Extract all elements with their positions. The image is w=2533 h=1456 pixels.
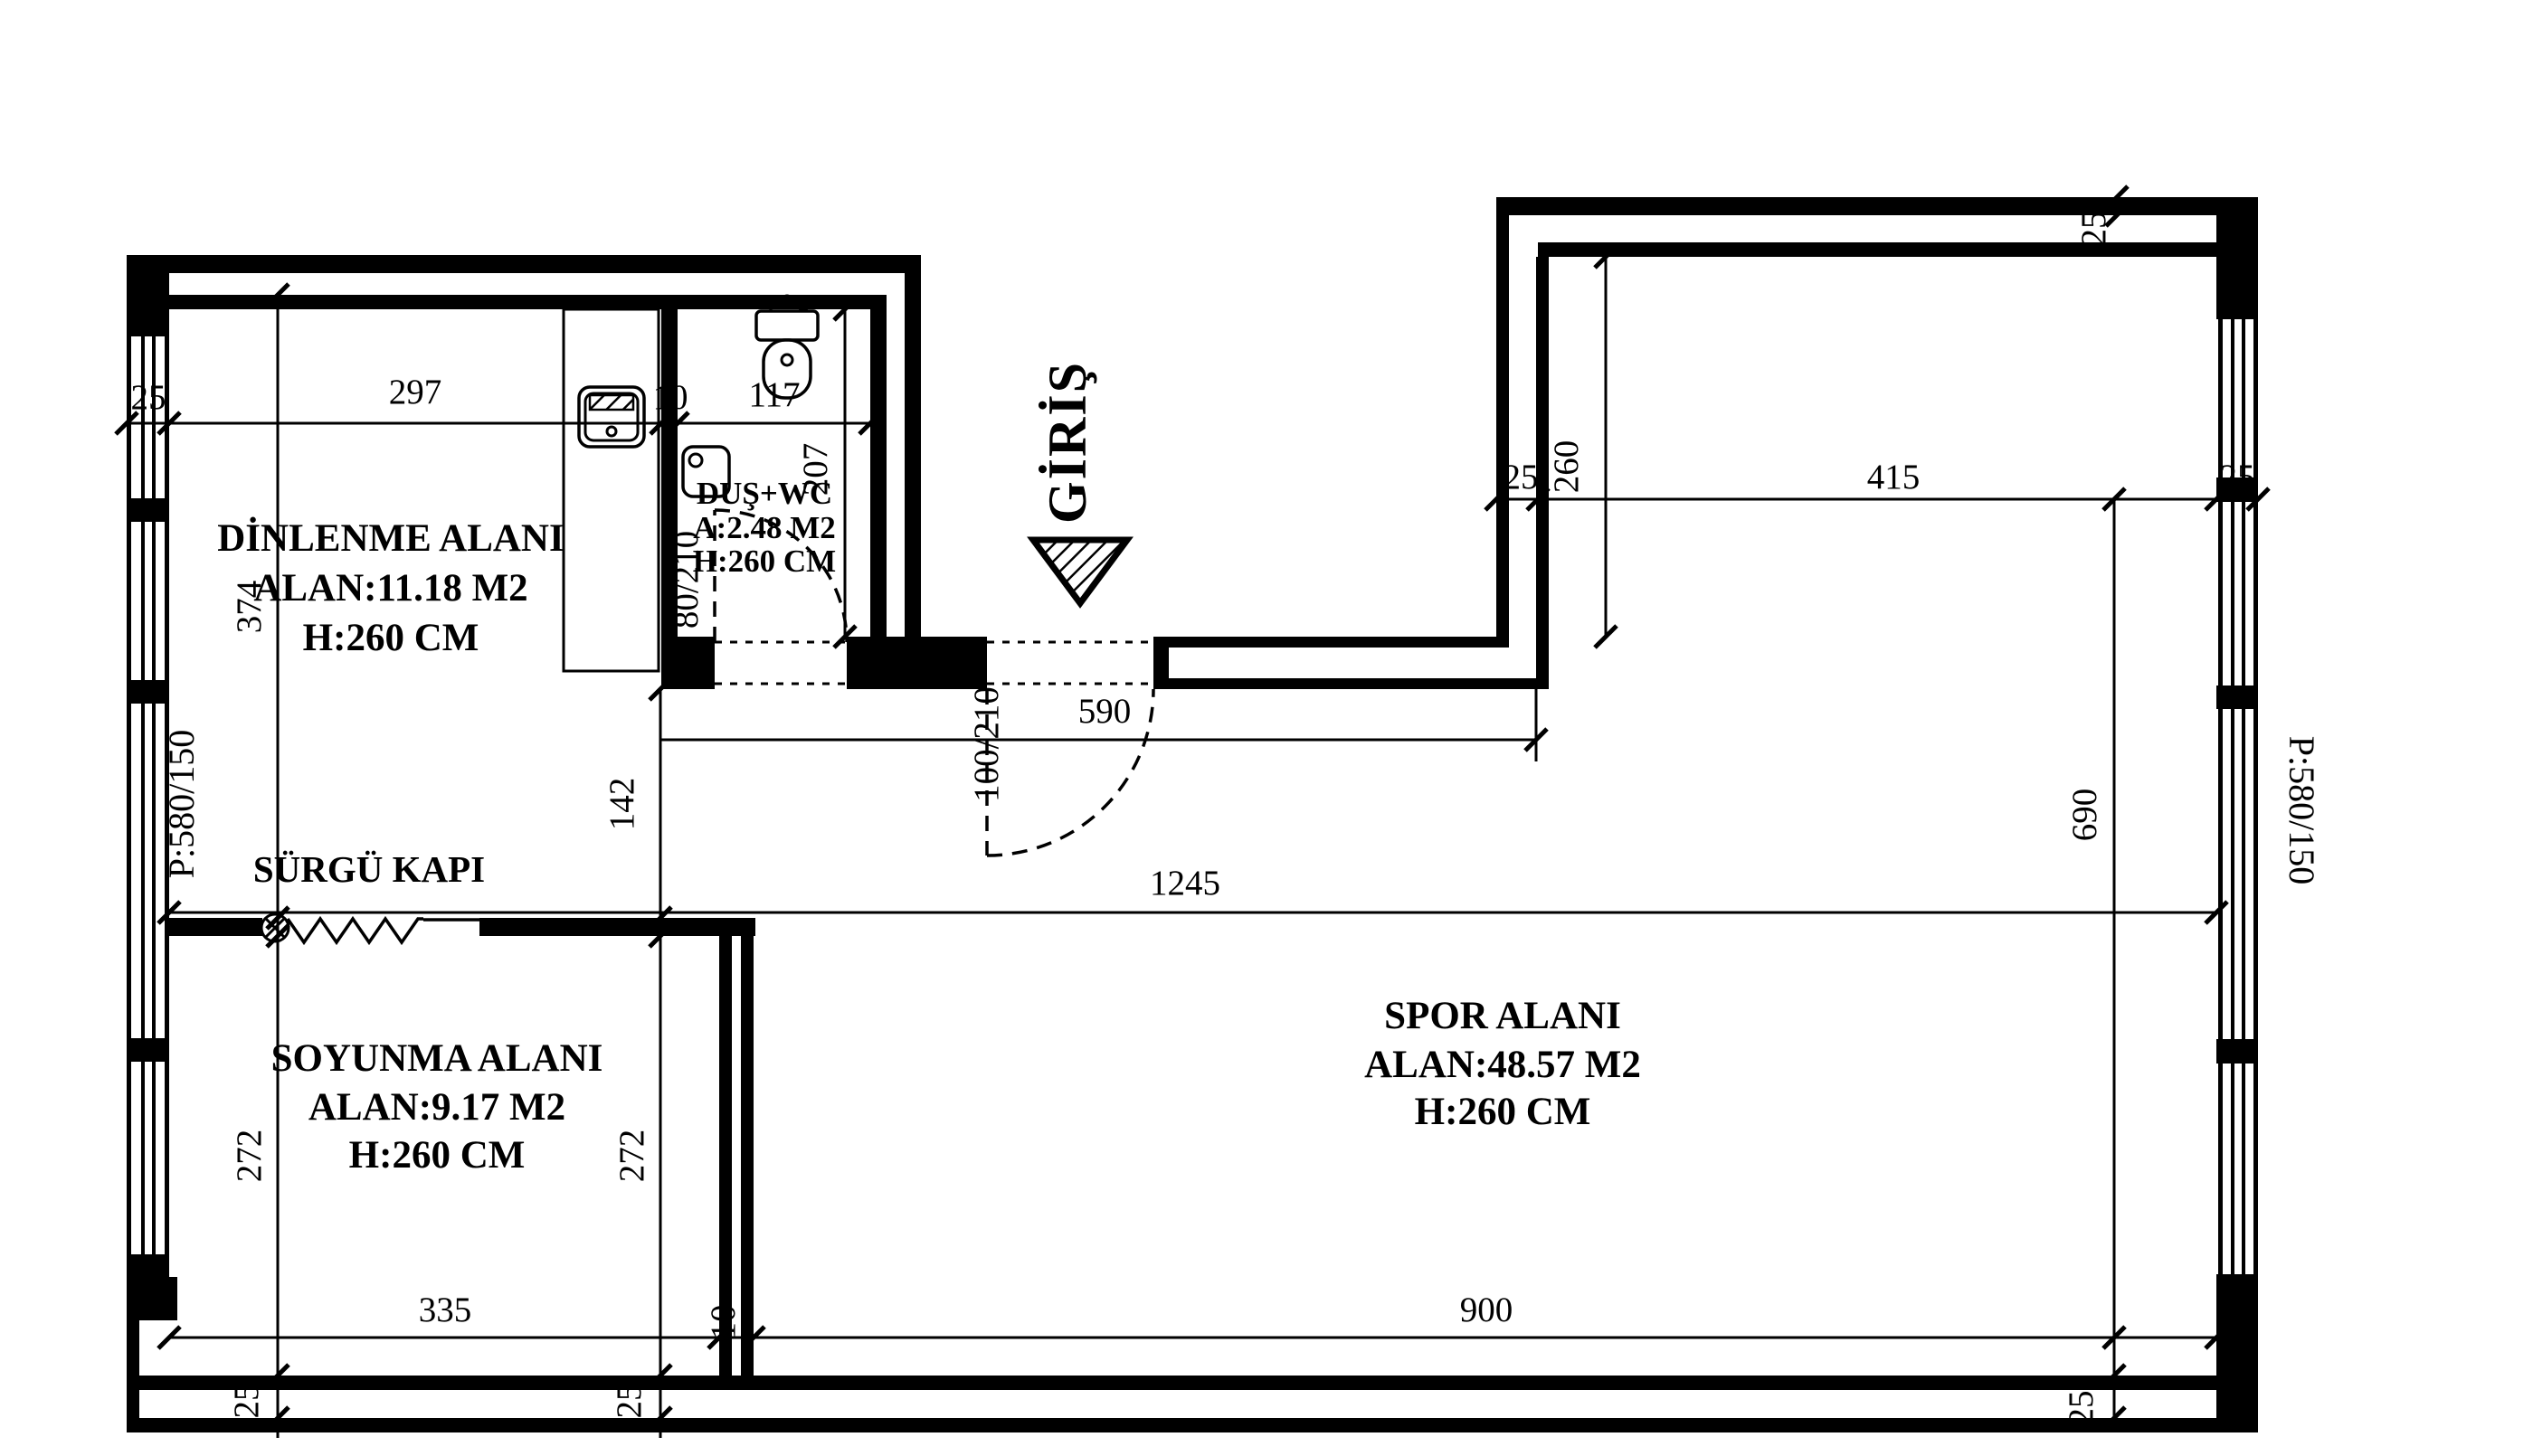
room-spor-area: ALAN:48.57 M2 — [1364, 1044, 1641, 1086]
entrance-marker — [1033, 540, 1127, 603]
room-labels: DİNLENME ALANI ALAN:11.18 M2 H:260 CM DU… — [161, 361, 2322, 1177]
walls — [127, 197, 2258, 1432]
wall-corner-top-right — [2216, 215, 2258, 319]
dim-door-entry: 100/210 — [967, 686, 1006, 802]
floor-plan-sheet: 25 297 10 117 374 207 142 590 100/210 80… — [0, 0, 2533, 1456]
room-dinlenme-title: DİNLENME ALANI — [217, 517, 564, 560]
dim-spor-width: 900 — [1460, 1291, 1513, 1329]
room-soyunma-height: H:260 CM — [349, 1134, 526, 1177]
dim-alcove-width: 415 — [1867, 458, 1921, 496]
window-left-mullion-3 — [127, 1038, 169, 1062]
window-left-mullion-1 — [127, 498, 169, 522]
window-right-mullion-3 — [2216, 1039, 2258, 1064]
dim-bottom-wall-right: 25 — [2062, 1391, 2101, 1426]
room-dus-title: DUŞ+WC — [697, 476, 832, 511]
wall-corner-bottom-right — [2216, 1274, 2258, 1432]
dim-entry-span: 590 — [1078, 692, 1132, 731]
dim-below-bath: 142 — [602, 778, 641, 831]
window-right-label: P:580/150 — [2282, 736, 2322, 884]
floor-plan-drawing: 25 297 10 117 374 207 142 590 100/210 80… — [0, 0, 2533, 1456]
wall-top-inner-right-block — [1538, 242, 2216, 257]
dim-soyunma-height-right: 272 — [612, 1130, 651, 1183]
dim-bottom-wall-mid: 25 — [610, 1384, 649, 1419]
dimension-labels: 25 297 10 117 374 207 142 590 100/210 80… — [131, 212, 2255, 1426]
wall-step-bottom-left — [127, 1277, 177, 1320]
wall-outer-mid — [905, 255, 921, 678]
dim-dinlenme-width: 297 — [389, 373, 442, 411]
wall-alcove-west — [1496, 215, 1509, 648]
wall-sliding-left — [169, 918, 262, 936]
room-spor-height: H:260 CM — [1415, 1091, 1591, 1133]
wall-partition-b — [741, 936, 754, 1376]
dim-right-height: 690 — [2065, 789, 2104, 842]
dimension-line-set — [127, 257, 2258, 1438]
window-left-line-outer — [127, 336, 131, 1254]
window-left-mullion-2 — [127, 680, 169, 704]
wall-bottom-outer — [127, 1418, 2258, 1432]
wall-sliding-right — [479, 918, 755, 936]
room-spor-title: SPOR ALANI — [1384, 995, 1621, 1037]
wall-bottom-inner — [139, 1376, 2216, 1390]
counter-sink-faucet — [590, 395, 633, 410]
room-soyunma-area: ALAN:9.17 M2 — [308, 1086, 565, 1129]
dim-soyunma-width: 335 — [419, 1291, 472, 1329]
dim-bath-width: 117 — [748, 375, 800, 414]
wall-top-outer-left-block — [127, 255, 921, 273]
dim-bottom-partition: 10 — [704, 1305, 743, 1340]
entrance-label: GİRİŞ — [1038, 361, 1097, 524]
door-sliding — [261, 914, 479, 942]
wall-top-outer-right-block — [1496, 197, 2258, 215]
wall-corner-top-left — [127, 273, 169, 336]
room-dus-height: H:260 CM — [693, 544, 836, 579]
wall-left-bottom — [127, 1320, 139, 1432]
sliding-door-zigzag — [288, 919, 423, 942]
dim-total-width: 1245 — [1150, 864, 1220, 903]
dim-bottom-wall-left: 25 — [227, 1384, 266, 1419]
window-left-end-block — [127, 1254, 169, 1277]
wall-mid-lower-line — [1153, 678, 1549, 689]
door-entry — [987, 642, 1153, 856]
wall-mid-upper-line — [1153, 637, 1509, 648]
dim-soyunma-height-left: 272 — [230, 1130, 269, 1183]
sliding-door-label: SÜRGÜ KAPI — [253, 848, 485, 890]
room-dinlenme-area: ALAN:11.18 M2 — [253, 567, 527, 610]
dim-wall-top-left: 25 — [131, 378, 166, 417]
counter — [564, 309, 659, 671]
dim-alcove-wall-right: 25 — [2220, 458, 2255, 496]
dim-top-wall-right: 25 — [2074, 212, 2113, 247]
window-left-label: P:580/150 — [161, 730, 202, 878]
window-left-line-mid1 — [141, 336, 145, 1254]
wall-entry-left-jamb — [847, 637, 987, 689]
dim-bath-partition: 10 — [653, 378, 688, 417]
window-right-mullion-2 — [2216, 685, 2258, 709]
entrance-arrow-triangle — [1033, 540, 1127, 603]
room-soyunma-title: SOYUNMA ALANI — [271, 1037, 603, 1080]
room-dus-area: A:2.48 M2 — [693, 510, 835, 545]
dim-alcove-wall-left: 25 — [1504, 458, 1539, 496]
room-dinlenme-height: H:260 CM — [303, 617, 479, 659]
toilet-tank — [756, 311, 818, 340]
dim-alcove-depth: 260 — [1547, 440, 1586, 494]
window-left-line-mid2 — [152, 336, 156, 1254]
wall-bath-right — [870, 295, 887, 637]
